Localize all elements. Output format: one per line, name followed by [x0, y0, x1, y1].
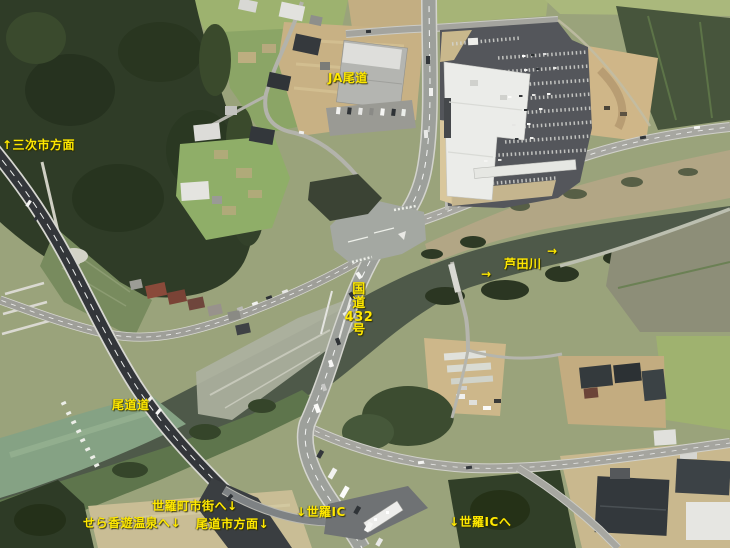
label-ashida-river: 芦田川 — [504, 257, 542, 271]
label-route-432: 国 道 432 号 — [343, 283, 375, 338]
aerial-photo: JA尾道 ↑三次市方面 → 芦田川 → 国 道 432 号 尾道道 世羅町市街へ… — [0, 0, 730, 548]
label-miyoshi-direction: ↑三次市方面 — [2, 138, 75, 152]
label-sera-town-center: 世羅町市街へ↓ — [152, 499, 238, 513]
label-sera-ic-east: ↓世羅ICへ — [449, 515, 511, 529]
label-ja-onomichi: JA尾道 — [328, 71, 368, 85]
shopping-center — [440, 22, 592, 208]
river-flow-arrow-lower: → — [481, 267, 492, 281]
label-onomichi-expressway: 尾道道 — [112, 398, 150, 412]
label-sera-koyu-onsen: せら香遊温泉へ↓ — [83, 516, 181, 530]
river-flow-arrow-upper: → — [547, 244, 558, 258]
label-onomichi-city-direction: 尾道市方面↓ — [196, 517, 269, 531]
label-sera-ic: ↓世羅IC — [296, 505, 346, 519]
